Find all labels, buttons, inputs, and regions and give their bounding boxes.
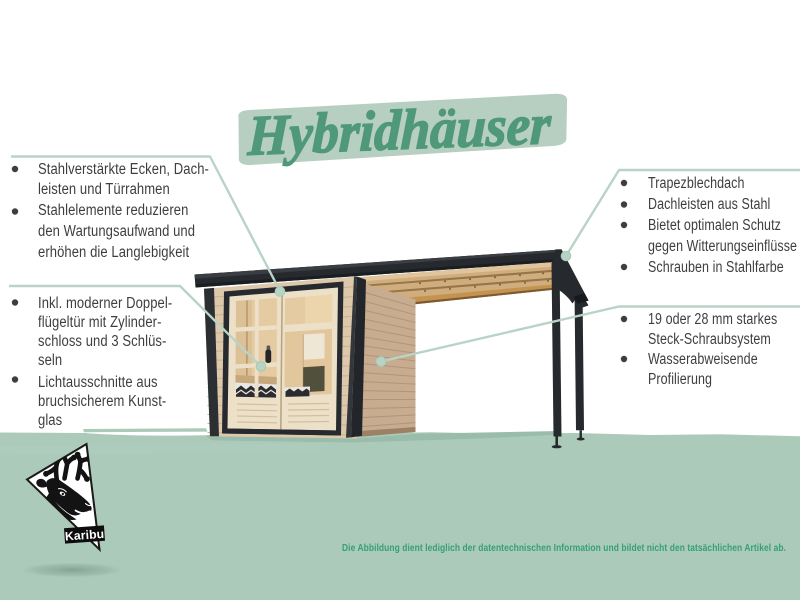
svg-text:Hybridhäuser: Hybridhäuser (246, 93, 552, 168)
svg-text:Die Abbildung dient lediglich: Die Abbildung dient lediglich der datent… (342, 543, 786, 554)
svg-text:Karibu: Karibu (65, 527, 105, 544)
